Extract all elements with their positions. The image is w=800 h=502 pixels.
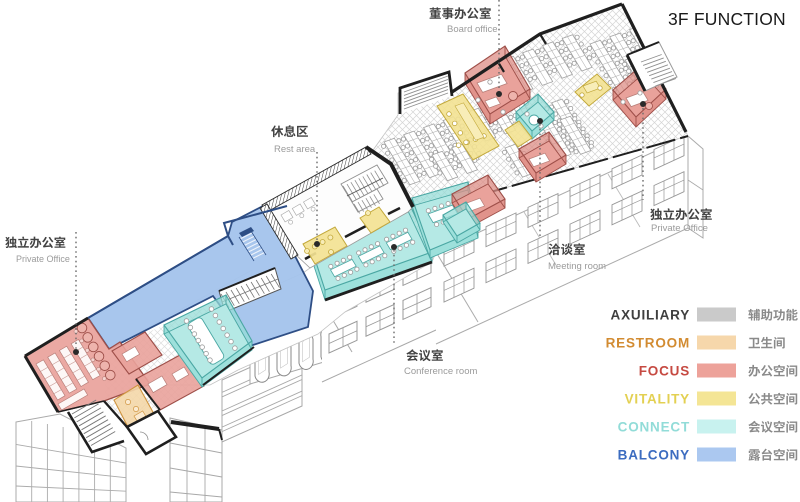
svg-text:CONNECT: CONNECT — [618, 420, 690, 435]
svg-text:Private Office: Private Office — [16, 254, 70, 264]
svg-text:RESTROOM: RESTROOM — [606, 336, 690, 351]
svg-text:Board office: Board office — [447, 24, 498, 35]
svg-text:Private Office: Private Office — [651, 223, 708, 234]
svg-text:Conference room: Conference room — [404, 366, 477, 377]
svg-text:AXUILIARY: AXUILIARY — [611, 308, 690, 323]
svg-text:BALCONY: BALCONY — [618, 448, 690, 463]
svg-text:Rest area: Rest area — [274, 144, 316, 155]
svg-text:3F FUNCTION: 3F FUNCTION — [668, 9, 786, 29]
svg-text:FOCUS: FOCUS — [639, 364, 690, 379]
svg-text:VITALITY: VITALITY — [625, 392, 690, 407]
svg-text:Meeting room: Meeting room — [548, 261, 606, 272]
